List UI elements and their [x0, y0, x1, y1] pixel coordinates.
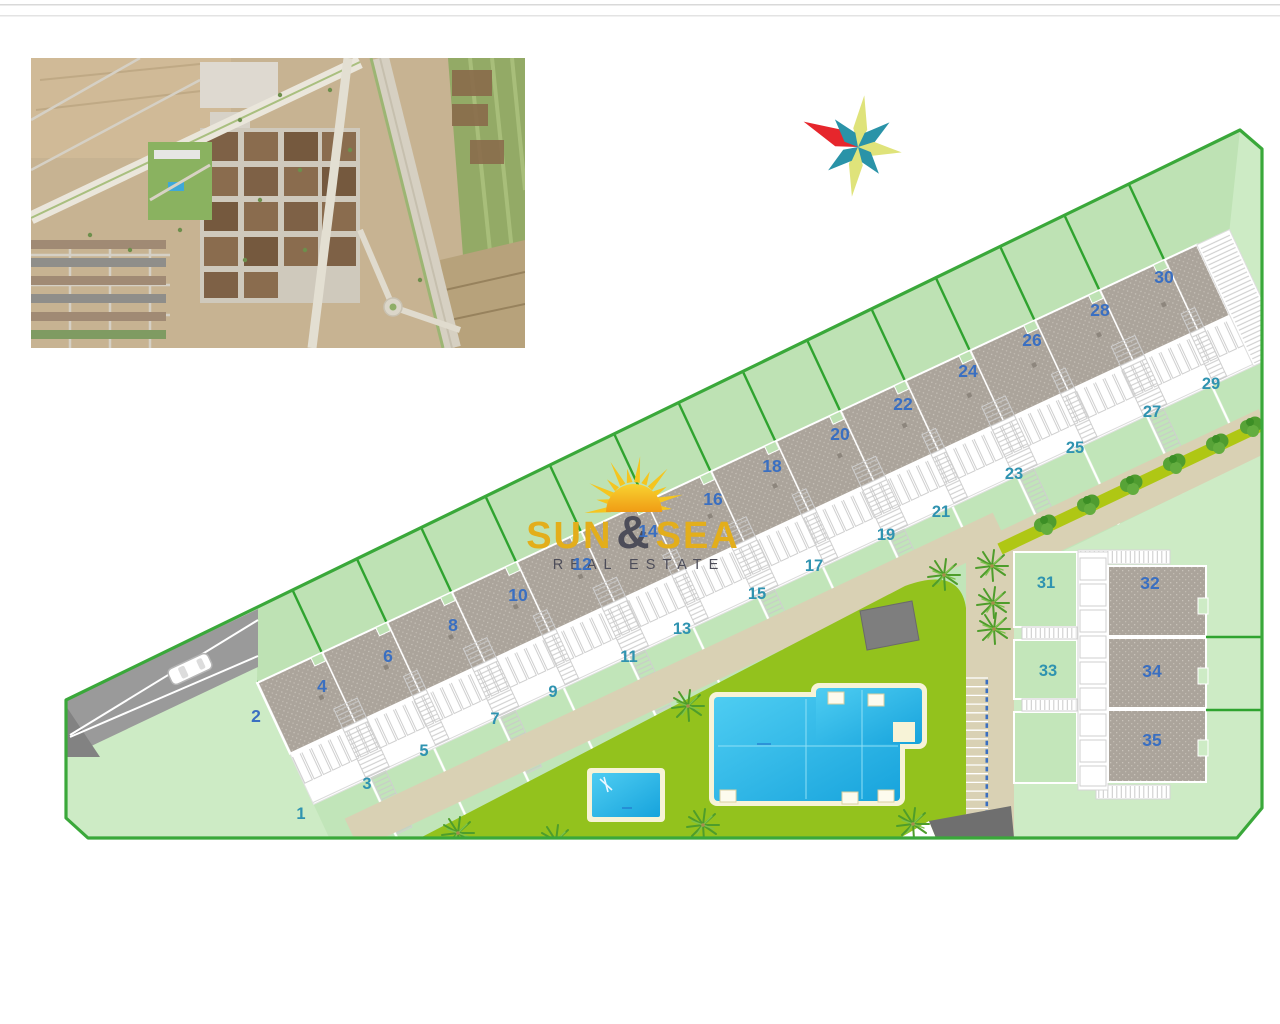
plot-number-9: 9 [548, 683, 557, 701]
plot-number-17: 17 [805, 557, 823, 575]
plot-number-15: 15 [748, 585, 766, 603]
plot-number-5: 5 [419, 742, 428, 760]
plot-number-19: 19 [877, 526, 895, 544]
plot-number-24: 24 [958, 361, 978, 381]
plot-number-22: 22 [893, 394, 913, 414]
plot-number-13: 13 [673, 620, 691, 638]
site-plan-page: SUN&SEA REAL ESTATE 12345678910111213141… [0, 0, 1280, 1024]
plot-number-27: 27 [1143, 403, 1161, 421]
plot-number-2: 2 [251, 706, 261, 726]
plot-number-6: 6 [383, 646, 393, 666]
plot-number-23: 23 [1005, 465, 1023, 483]
plot-number-34: 34 [1142, 661, 1162, 681]
aerial-photo-inset [31, 58, 525, 348]
page-top-line-2 [0, 15, 1280, 17]
compass-rose-icon [804, 95, 902, 196]
plot-number-21: 21 [932, 503, 950, 521]
plot-number-4: 4 [317, 676, 327, 696]
plot-number-14: 14 [638, 521, 658, 541]
plot-number-26: 26 [1022, 330, 1042, 350]
plot-number-31: 31 [1037, 574, 1055, 592]
swimming-pool [709, 683, 927, 806]
page-top-line [0, 4, 1280, 6]
plot-number-11: 11 [620, 648, 637, 666]
plot-number-16: 16 [703, 489, 723, 509]
plot-number-12: 12 [572, 554, 592, 574]
plot-number-8: 8 [448, 615, 458, 635]
walkway-vertical [966, 540, 1014, 838]
plot-number-1: 1 [296, 805, 305, 823]
plot-number-7: 7 [490, 710, 499, 728]
plot-number-33: 33 [1039, 662, 1057, 680]
plot-number-20: 20 [830, 424, 850, 444]
plot-number-35: 35 [1142, 730, 1162, 750]
plot-number-29: 29 [1202, 375, 1220, 393]
plot-number-32: 32 [1140, 573, 1160, 593]
plot-number-10: 10 [508, 585, 528, 605]
plot-number-30: 30 [1154, 267, 1174, 287]
site-plan: SUN&SEA REAL ESTATE 12345678910111213141… [0, 0, 1280, 1024]
plot-number-18: 18 [762, 456, 782, 476]
plot-number-25: 25 [1066, 439, 1084, 457]
plot-number-28: 28 [1090, 300, 1110, 320]
kids-pool [587, 768, 665, 822]
plot-number-3: 3 [362, 775, 371, 793]
